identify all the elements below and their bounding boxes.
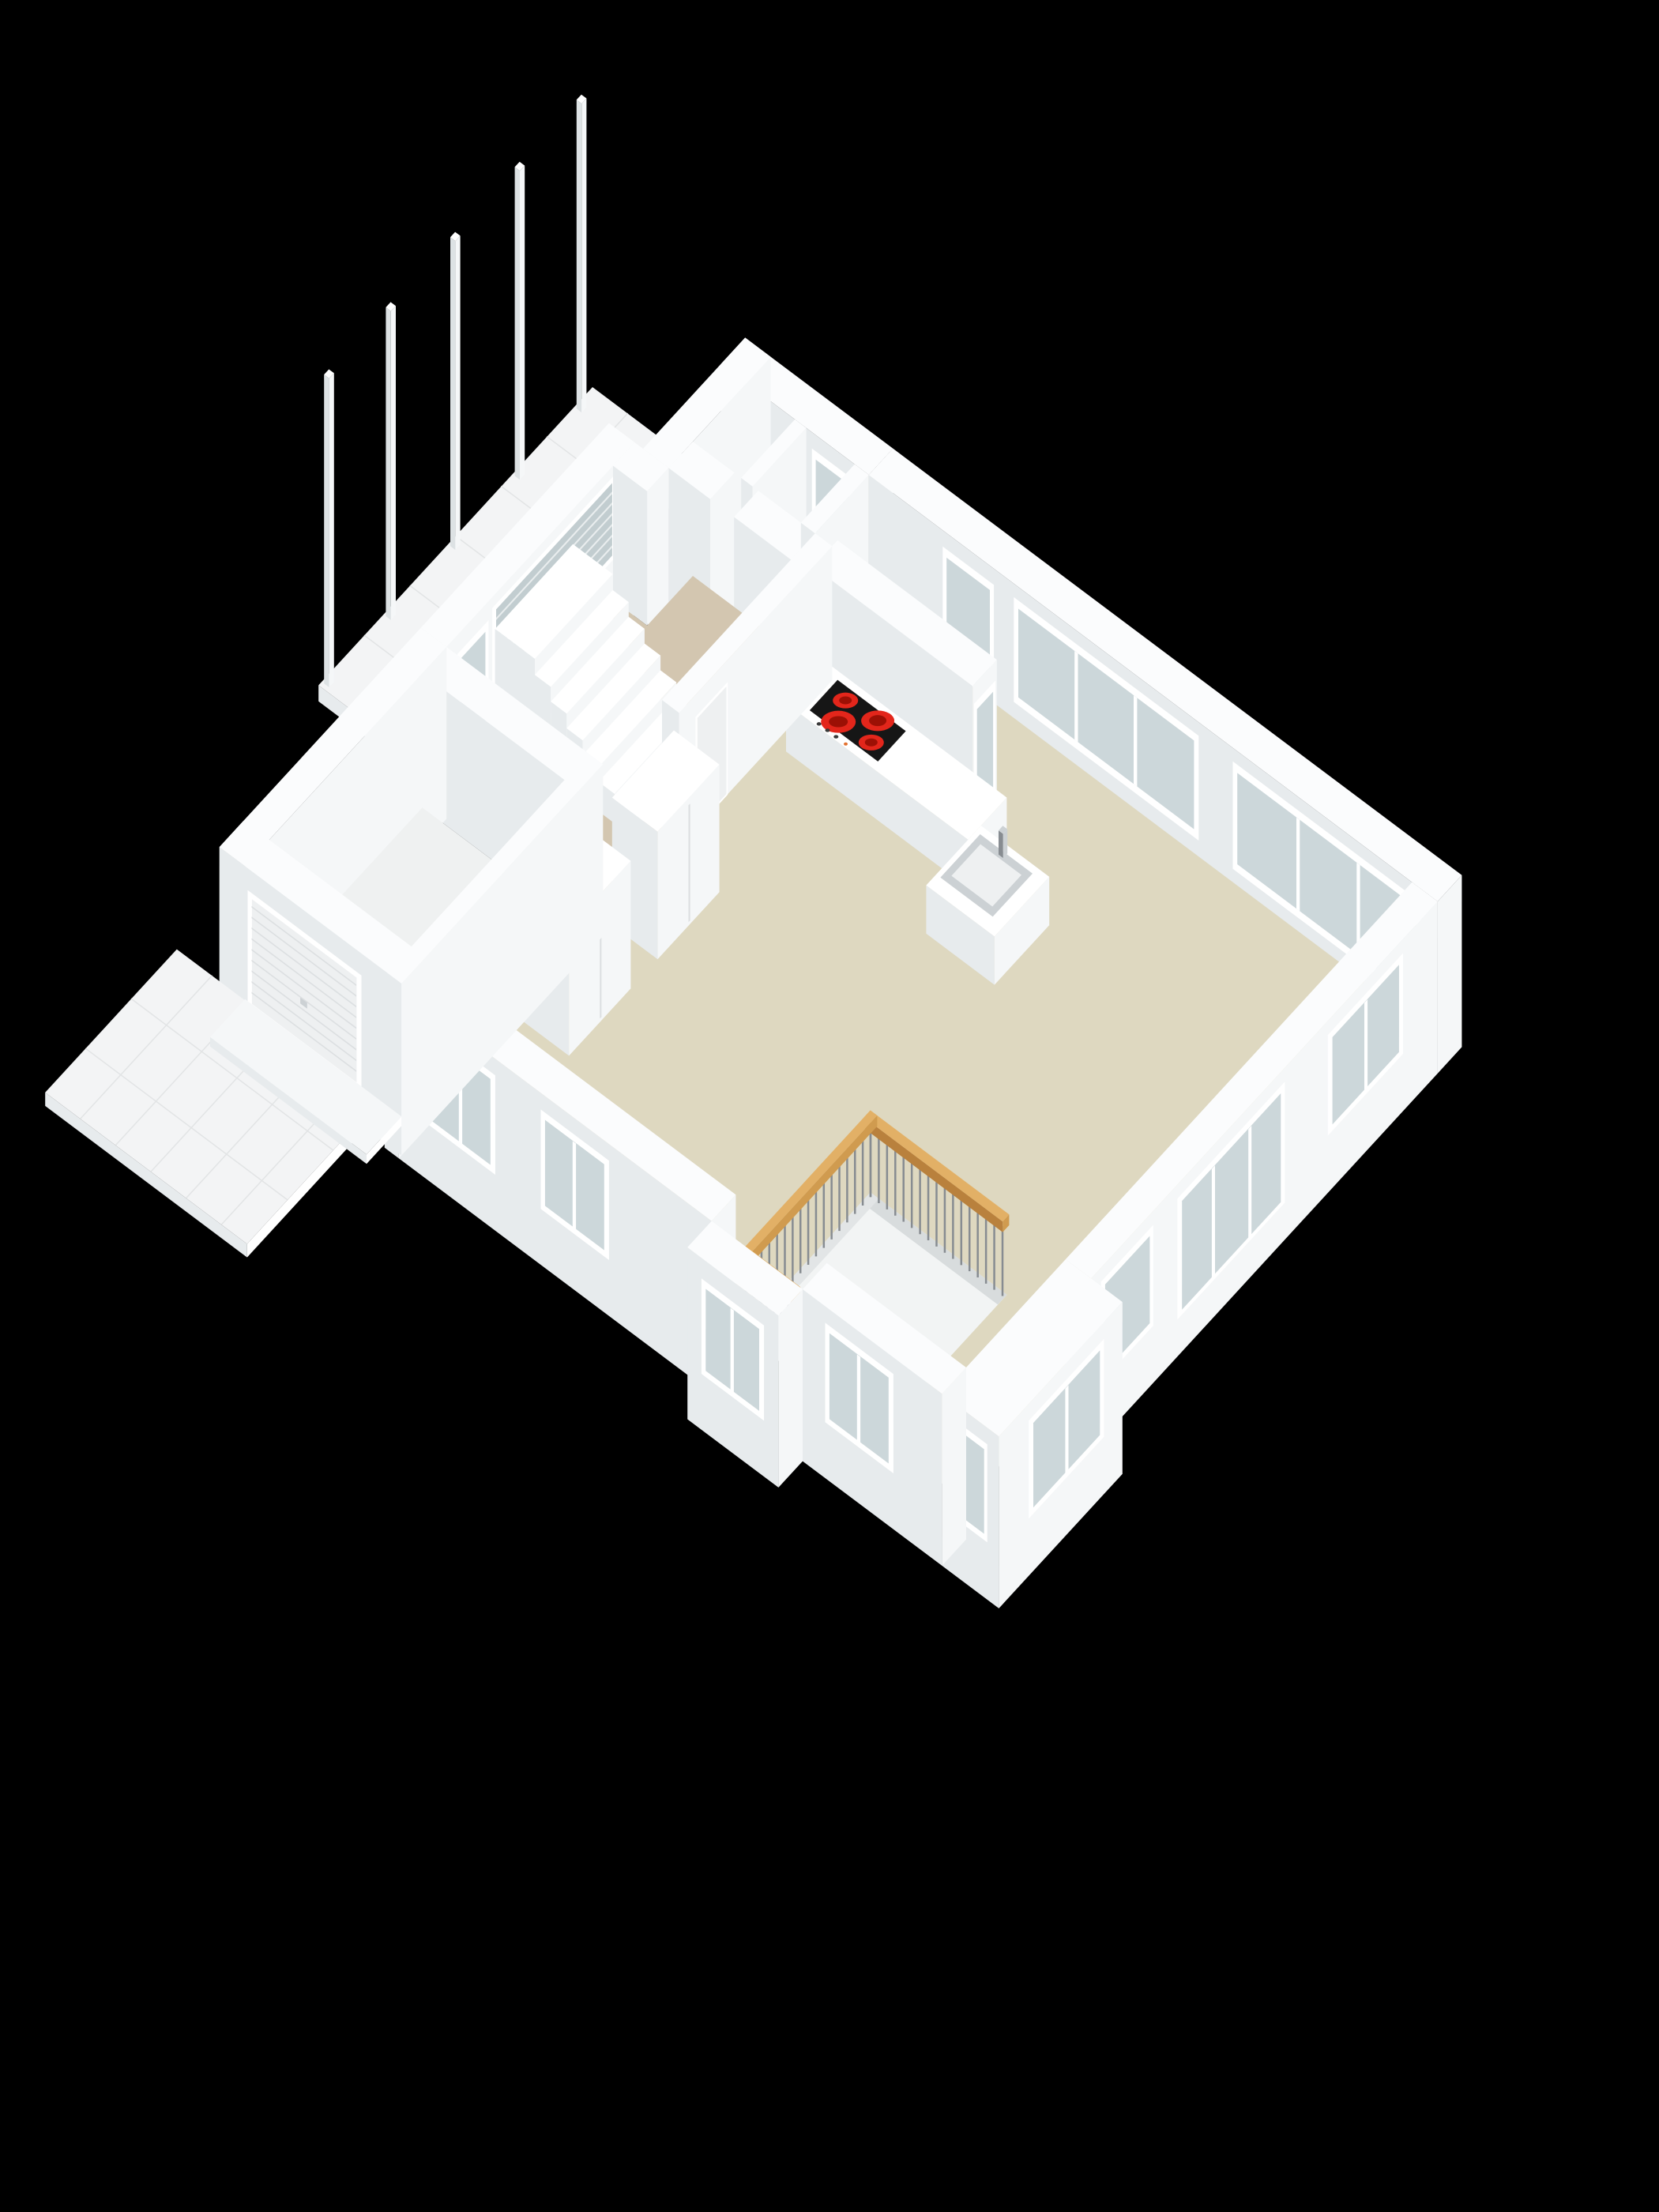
cooktop-knob-orange: [844, 743, 848, 746]
sink-faucet-se-face: [1003, 829, 1007, 859]
bump-se-window-mullion: [1065, 1385, 1068, 1473]
sw-bump-window-mullion: [731, 1308, 734, 1393]
hall-nw-connector-wall-se-face: [647, 468, 668, 626]
sw-window-3-mullion: [857, 1354, 860, 1443]
garage-sw-wall-se-face: [401, 957, 426, 1156]
column-pole-1-se-face: [581, 99, 586, 413]
burner-2-ring: [829, 717, 848, 728]
cooktop-knob-1: [817, 722, 822, 725]
wardrobe-a-door-seam: [689, 803, 690, 922]
ne-window-band-1-mullion-b: [1134, 695, 1137, 787]
sink-faucet-sw-face: [999, 830, 1003, 858]
se-window-1-mullion: [1364, 999, 1367, 1090]
column-pole-3-sw-face: [450, 237, 455, 550]
column-pole-5-sw-face: [324, 374, 329, 687]
sw-window-2-mullion: [573, 1141, 576, 1229]
column-pole-1-sw-face: [577, 100, 581, 412]
se-sliding-door-mullion-b: [1212, 1165, 1215, 1277]
burner-3-ring: [869, 715, 886, 726]
burner-4-ring: [865, 739, 878, 747]
ne-window-band-2-mullion-a: [1296, 818, 1300, 912]
column-pole-4-se-face: [391, 306, 396, 620]
column-pole-5-se-face: [329, 373, 334, 687]
column-pole-2-sw-face: [515, 167, 520, 480]
ne-window-band-1-mullion-a: [1074, 651, 1078, 742]
floorplan-3d-scene: [0, 0, 1659, 2212]
se-sliding-door-mullion-a: [1248, 1126, 1251, 1238]
burner-1-ring: [839, 697, 852, 705]
cooktop-knob-2: [825, 728, 829, 732]
sw-stair-bump-se-face: [778, 1289, 803, 1488]
floorplan-3d-render: [0, 0, 1659, 2212]
column-pole-2-se-face: [520, 166, 525, 480]
cooktop-knob-3: [833, 735, 838, 738]
sw-wall-east-se-face: [942, 1367, 966, 1566]
column-pole-4-sw-face: [386, 307, 390, 620]
main-ne-wall-se-face: [1438, 875, 1462, 1074]
column-pole-3-se-face: [455, 235, 460, 550]
